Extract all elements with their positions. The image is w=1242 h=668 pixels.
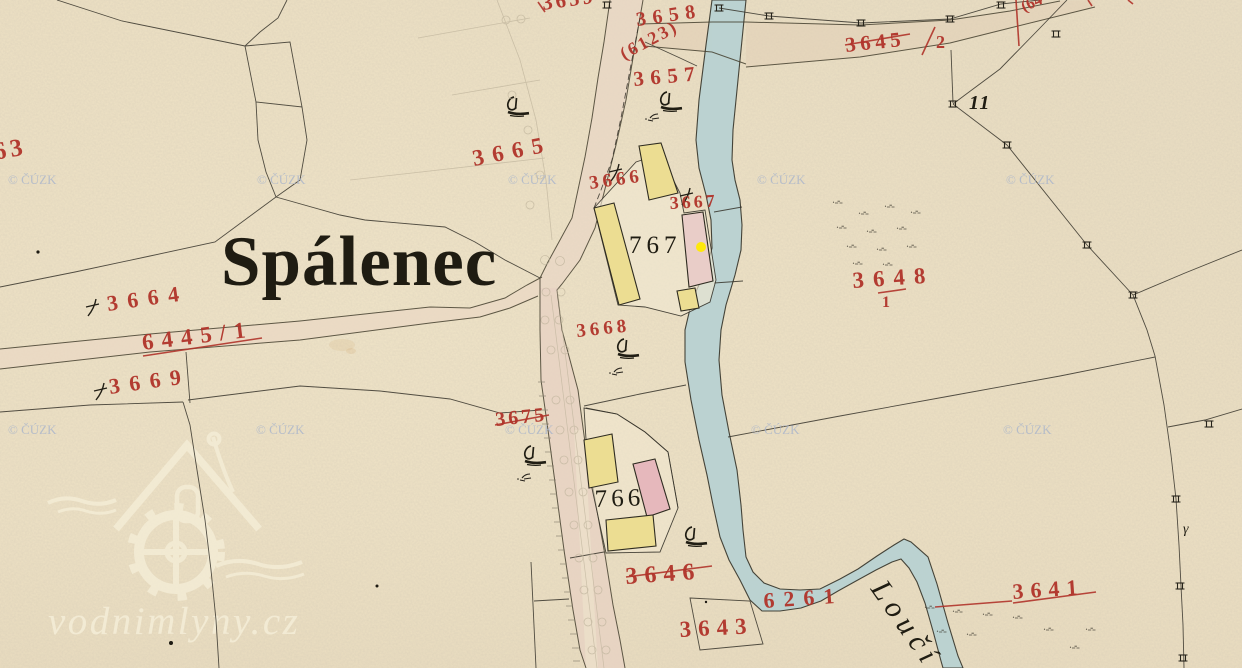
svg-text:© ČÚZK: © ČÚZK xyxy=(1006,172,1055,187)
svg-text:3643: 3643 xyxy=(679,613,754,642)
svg-text:11: 11 xyxy=(969,92,991,114)
svg-text:© ČÚZK: © ČÚZK xyxy=(751,422,800,437)
svg-text:© ČÚZK: © ČÚZK xyxy=(1003,422,1052,437)
svg-text:© ČÚZK: © ČÚZK xyxy=(505,422,554,437)
svg-text:© ČÚZK: © ČÚZK xyxy=(8,422,57,437)
svg-text:Spálenec: Spálenec xyxy=(221,223,497,301)
svg-text:767: 767 xyxy=(629,232,682,259)
svg-text:766: 766 xyxy=(594,484,644,513)
svg-text:3667: 3667 xyxy=(669,191,718,213)
svg-text:© ČÚZK: © ČÚZK xyxy=(508,172,557,187)
svg-text:© ČÚZK: © ČÚZK xyxy=(257,172,306,187)
svg-text:© ČÚZK: © ČÚZK xyxy=(8,172,57,187)
svg-text:3646: 3646 xyxy=(625,559,703,590)
svg-text:γ: γ xyxy=(1183,522,1189,537)
svg-text:vodnimlyny.cz: vodnimlyny.cz xyxy=(48,600,300,643)
svg-text:© ČÚZK: © ČÚZK xyxy=(757,172,806,187)
svg-text:3641: 3641 xyxy=(1012,574,1086,604)
svg-text:© ČÚZK: © ČÚZK xyxy=(256,422,305,437)
svg-text:1: 1 xyxy=(882,294,890,311)
svg-text:2: 2 xyxy=(936,32,945,52)
